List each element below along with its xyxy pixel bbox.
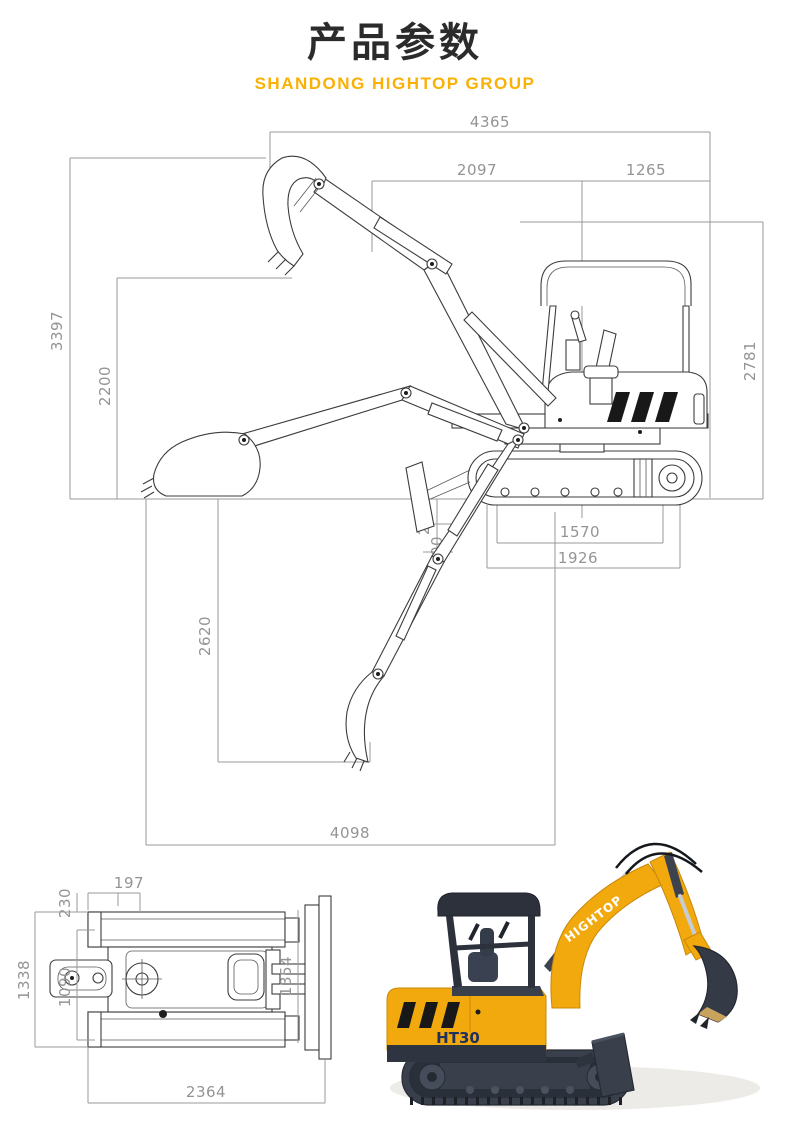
dim-blade-width: 1354 xyxy=(277,956,295,996)
dim-rear-section: 1265 xyxy=(626,161,666,179)
dim-edge-offset: 230 xyxy=(56,888,74,918)
arm-ground-reach xyxy=(141,386,524,498)
page-title: 产品参数 xyxy=(0,10,790,68)
dim-transport-length: 2364 xyxy=(186,1083,226,1101)
dim-overall-length: 4365 xyxy=(470,113,510,131)
photo-canopy xyxy=(438,893,544,996)
brand-subtitle: SHANDONG HIGHTOP GROUP xyxy=(0,74,790,94)
dim-transport-height: 2781 xyxy=(741,341,759,381)
dim-track-length: 1926 xyxy=(558,549,598,567)
dim-dig-depth: 2620 xyxy=(196,616,214,656)
dim-shoe-width: 197 xyxy=(114,874,144,892)
dim-max-height: 3397 xyxy=(48,311,66,351)
photo-boom: HIGHTOP xyxy=(544,844,712,1008)
dim-wheelbase: 1570 xyxy=(560,523,600,541)
excavator-photo: HIGHTOP xyxy=(387,844,760,1110)
dim-track-gauge: 1090 xyxy=(56,967,74,1007)
spec-diagram-canvas: 4365 2097 1265 3397 2200 2781 245 xyxy=(0,0,790,1144)
dim-front-section: 2097 xyxy=(457,161,497,179)
dim-dig-reach: 4098 xyxy=(330,824,370,842)
model-text: HT30 xyxy=(436,1029,480,1047)
dim-overall-width: 1338 xyxy=(15,960,33,1000)
page-header: 产品参数 SHANDONG HIGHTOP GROUP xyxy=(0,0,790,94)
photo-body: HT30 xyxy=(387,988,546,1062)
product-parameters-page: 产品参数 SHANDONG HIGHTOP GROUP 4365 2097 12… xyxy=(0,0,790,1144)
side-view-drawing xyxy=(141,156,708,771)
dim-mid-height: 2200 xyxy=(96,366,114,406)
